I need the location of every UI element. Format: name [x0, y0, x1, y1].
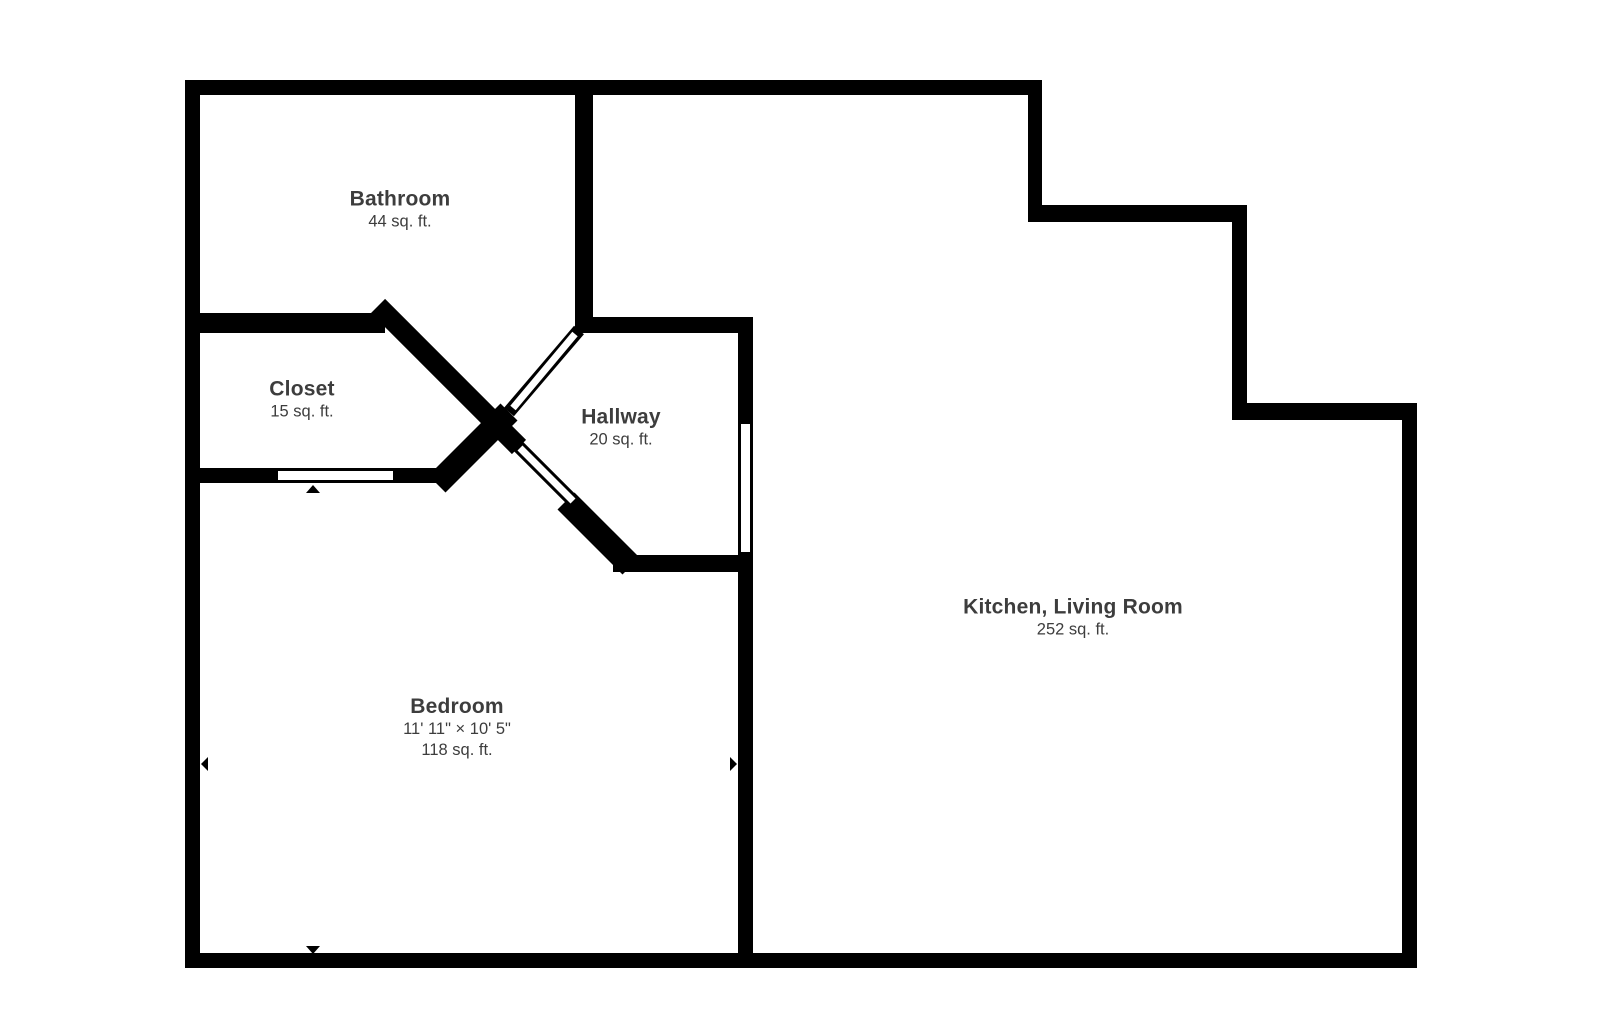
wall-bottom [185, 953, 1417, 968]
wall-step1-vertical [1028, 93, 1042, 222]
wall-closet-top [200, 313, 385, 333]
wall-bathroom-right [575, 93, 593, 333]
floor-plan-drawing [0, 0, 1600, 1031]
dimension-arrow-left-icon [201, 757, 208, 771]
floor-plan-page: Bathroom 44 sq. ft. Closet 15 sq. ft. Ha… [0, 0, 1600, 1031]
wall-diagonal-closet-lower [437, 412, 509, 484]
wall-step2-vertical [1232, 205, 1247, 420]
exterior-walls [185, 80, 1417, 968]
wall-left [185, 80, 200, 968]
wall-hallway-bedroom-right [738, 317, 753, 953]
dimension-arrow-down-icon [306, 946, 320, 954]
dimension-arrow-up-icon [306, 485, 320, 493]
dimension-arrow-right-icon [730, 757, 737, 771]
closet-sliding-door [278, 471, 393, 480]
wall-hallway-top [585, 317, 753, 333]
interior-walls [200, 93, 753, 953]
wall-top [185, 80, 1042, 95]
wall-step2-horizontal [1232, 403, 1417, 420]
wall-step1-horizontal [1028, 205, 1247, 222]
hallway-kitchen-door-opening [741, 424, 750, 552]
wall-right [1402, 403, 1417, 968]
bedroom-door-leaf [520, 448, 573, 501]
bathroom-door-leaf [513, 334, 575, 408]
wall-diagonal-bedroom-corner [566, 501, 631, 566]
